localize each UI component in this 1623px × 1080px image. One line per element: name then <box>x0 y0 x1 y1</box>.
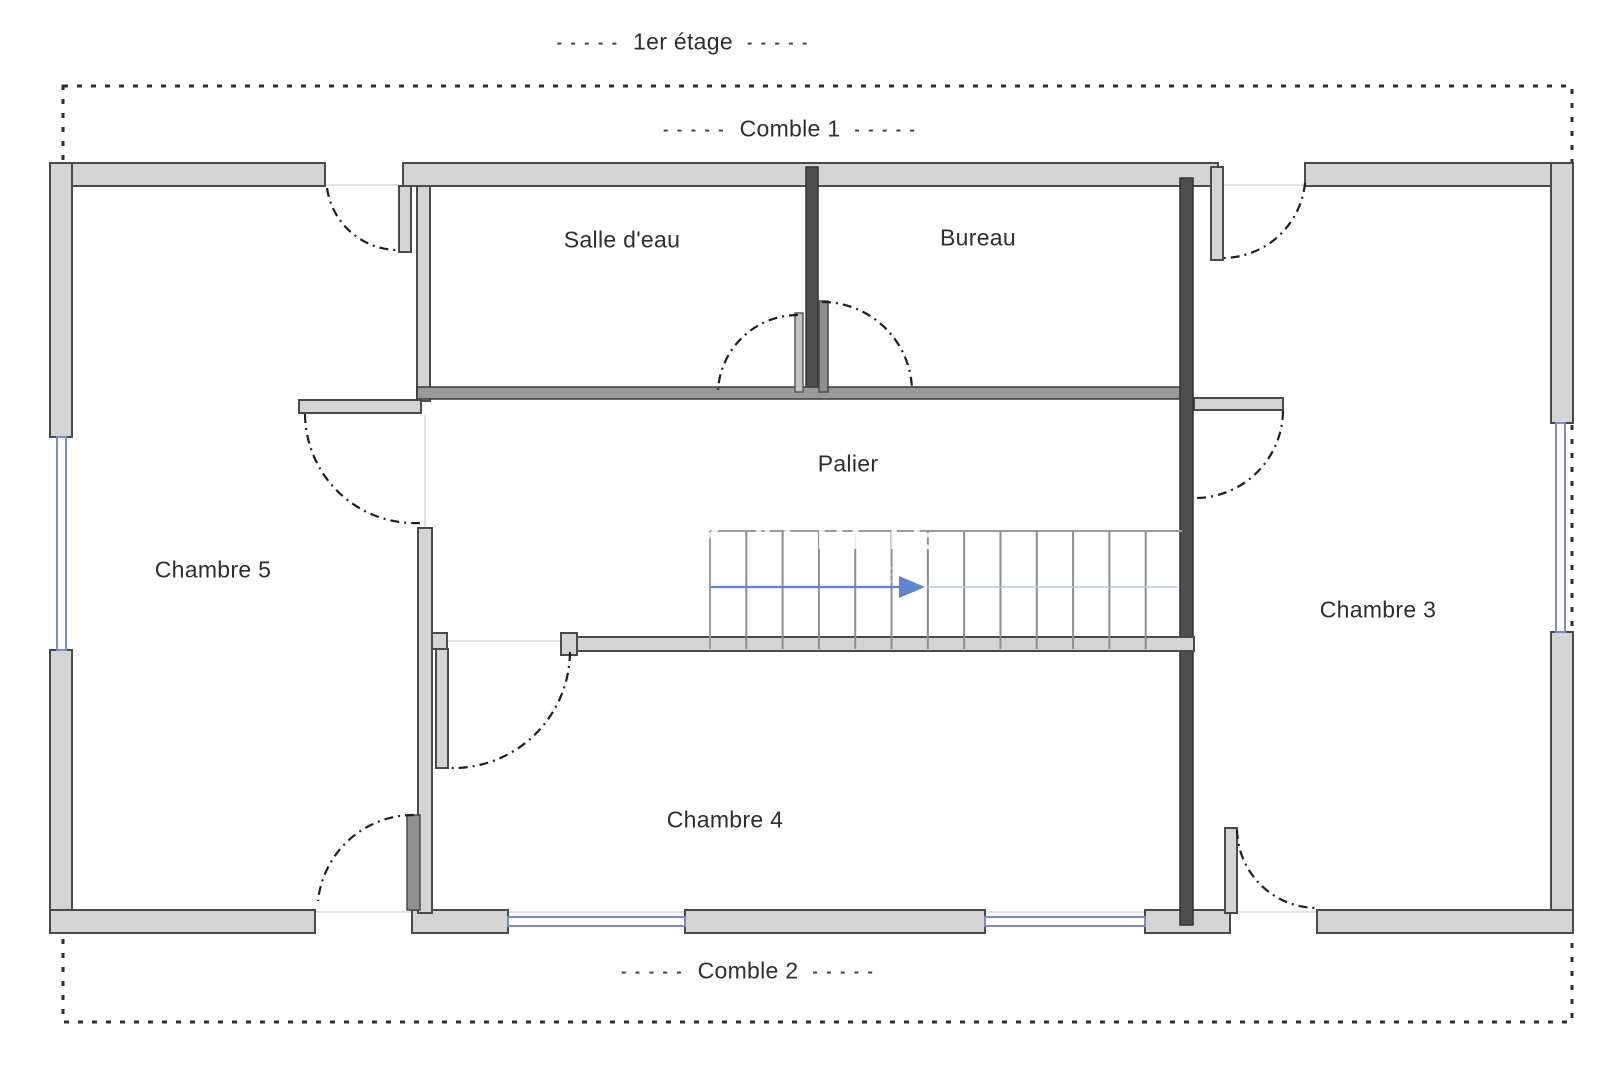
door-arc-comble1-right <box>1222 183 1305 258</box>
comble1-text: Comble 1 <box>740 116 841 142</box>
room-label-salle-deau: Salle d'eau <box>564 227 680 254</box>
floor-title-text: 1er étage <box>633 29 733 55</box>
wall-stub-palier-left <box>299 400 421 413</box>
room-label-chambre-4: Chambre 4 <box>667 807 783 834</box>
window-bottom-1 <box>508 917 685 926</box>
comble2-dash-right: - - - - - <box>812 964 874 981</box>
windows <box>57 423 1565 926</box>
jamb-chambre3-bottom-door <box>1225 828 1237 913</box>
wall-right-upper <box>1551 163 1573 423</box>
comble2-dash-left: - - - - - <box>621 964 683 981</box>
room-label-palier: Palier <box>818 451 879 478</box>
floor-plan: - - - - -1er étage- - - - - - - - - -Com… <box>0 0 1623 1080</box>
jamb-comble1-door-left <box>399 186 411 252</box>
door-leaf-bureau <box>819 301 828 392</box>
wall-stairs-south <box>563 637 1194 651</box>
door-arc-chambre3 <box>1195 411 1283 498</box>
comble1-dash-right: - - - - - <box>854 122 916 139</box>
jamb-chambre4-door <box>436 649 448 768</box>
watermark-text-line1: K ACHETE <box>700 514 943 559</box>
watermark-text-line2: N E R <box>712 562 1136 590</box>
door-arc-bureau <box>822 302 912 390</box>
room-label-chambre-3: Chambre 3 <box>1320 597 1436 624</box>
wall-left-lower <box>50 650 72 933</box>
door-arc-chambre5 <box>305 414 420 523</box>
wall-dark-chambre3-separation <box>1180 178 1193 925</box>
room-label-bureau: Bureau <box>940 225 1016 252</box>
wall-salle-deau-left <box>417 186 430 401</box>
door-arc-comble1-left <box>327 188 399 250</box>
door-arc-chambre4 <box>450 652 570 768</box>
window-left <box>57 437 66 650</box>
floor-title: - - - - -1er étage- - - - - <box>543 29 824 56</box>
wall-bottom-b <box>685 910 985 933</box>
door-arc-comble2-right <box>1237 830 1317 908</box>
wall-palier-north <box>417 387 1192 399</box>
door-arc-comble2-left <box>318 815 414 901</box>
door-arc-salle-deau <box>718 315 798 390</box>
comble2-text: Comble 2 <box>698 958 799 984</box>
wall-divider-salledeau-bureau <box>806 167 818 398</box>
wall-top-left <box>50 163 325 186</box>
window-bottom-2 <box>985 917 1145 926</box>
wall-notch <box>432 633 447 649</box>
window-right <box>1556 423 1565 632</box>
door-leaf-comble2-access <box>407 815 420 910</box>
wall-left-upper <box>50 163 72 437</box>
zone-label-comble-2: - - - - -Comble 2- - - - - <box>607 958 889 985</box>
comble1-dash-left: - - - - - <box>663 122 725 139</box>
wall-right-lower <box>1551 632 1573 933</box>
room-label-chambre-5: Chambre 5 <box>155 557 271 584</box>
jamb-comble1-door-right <box>1211 167 1223 260</box>
title-dash-left: - - - - - <box>557 35 619 52</box>
zone-label-comble-1: - - - - -Comble 1- - - - - <box>649 116 931 143</box>
title-dash-right: - - - - - <box>747 35 809 52</box>
wall-stub-chambre3-door <box>1194 398 1283 410</box>
wall-bottom-chambre5 <box>50 910 315 933</box>
wall-bottom-chambre3 <box>1317 910 1573 933</box>
wall-top-right <box>1305 163 1573 186</box>
wall-stairs-south-cap <box>561 633 577 655</box>
door-leaf-salle-deau <box>795 313 803 392</box>
